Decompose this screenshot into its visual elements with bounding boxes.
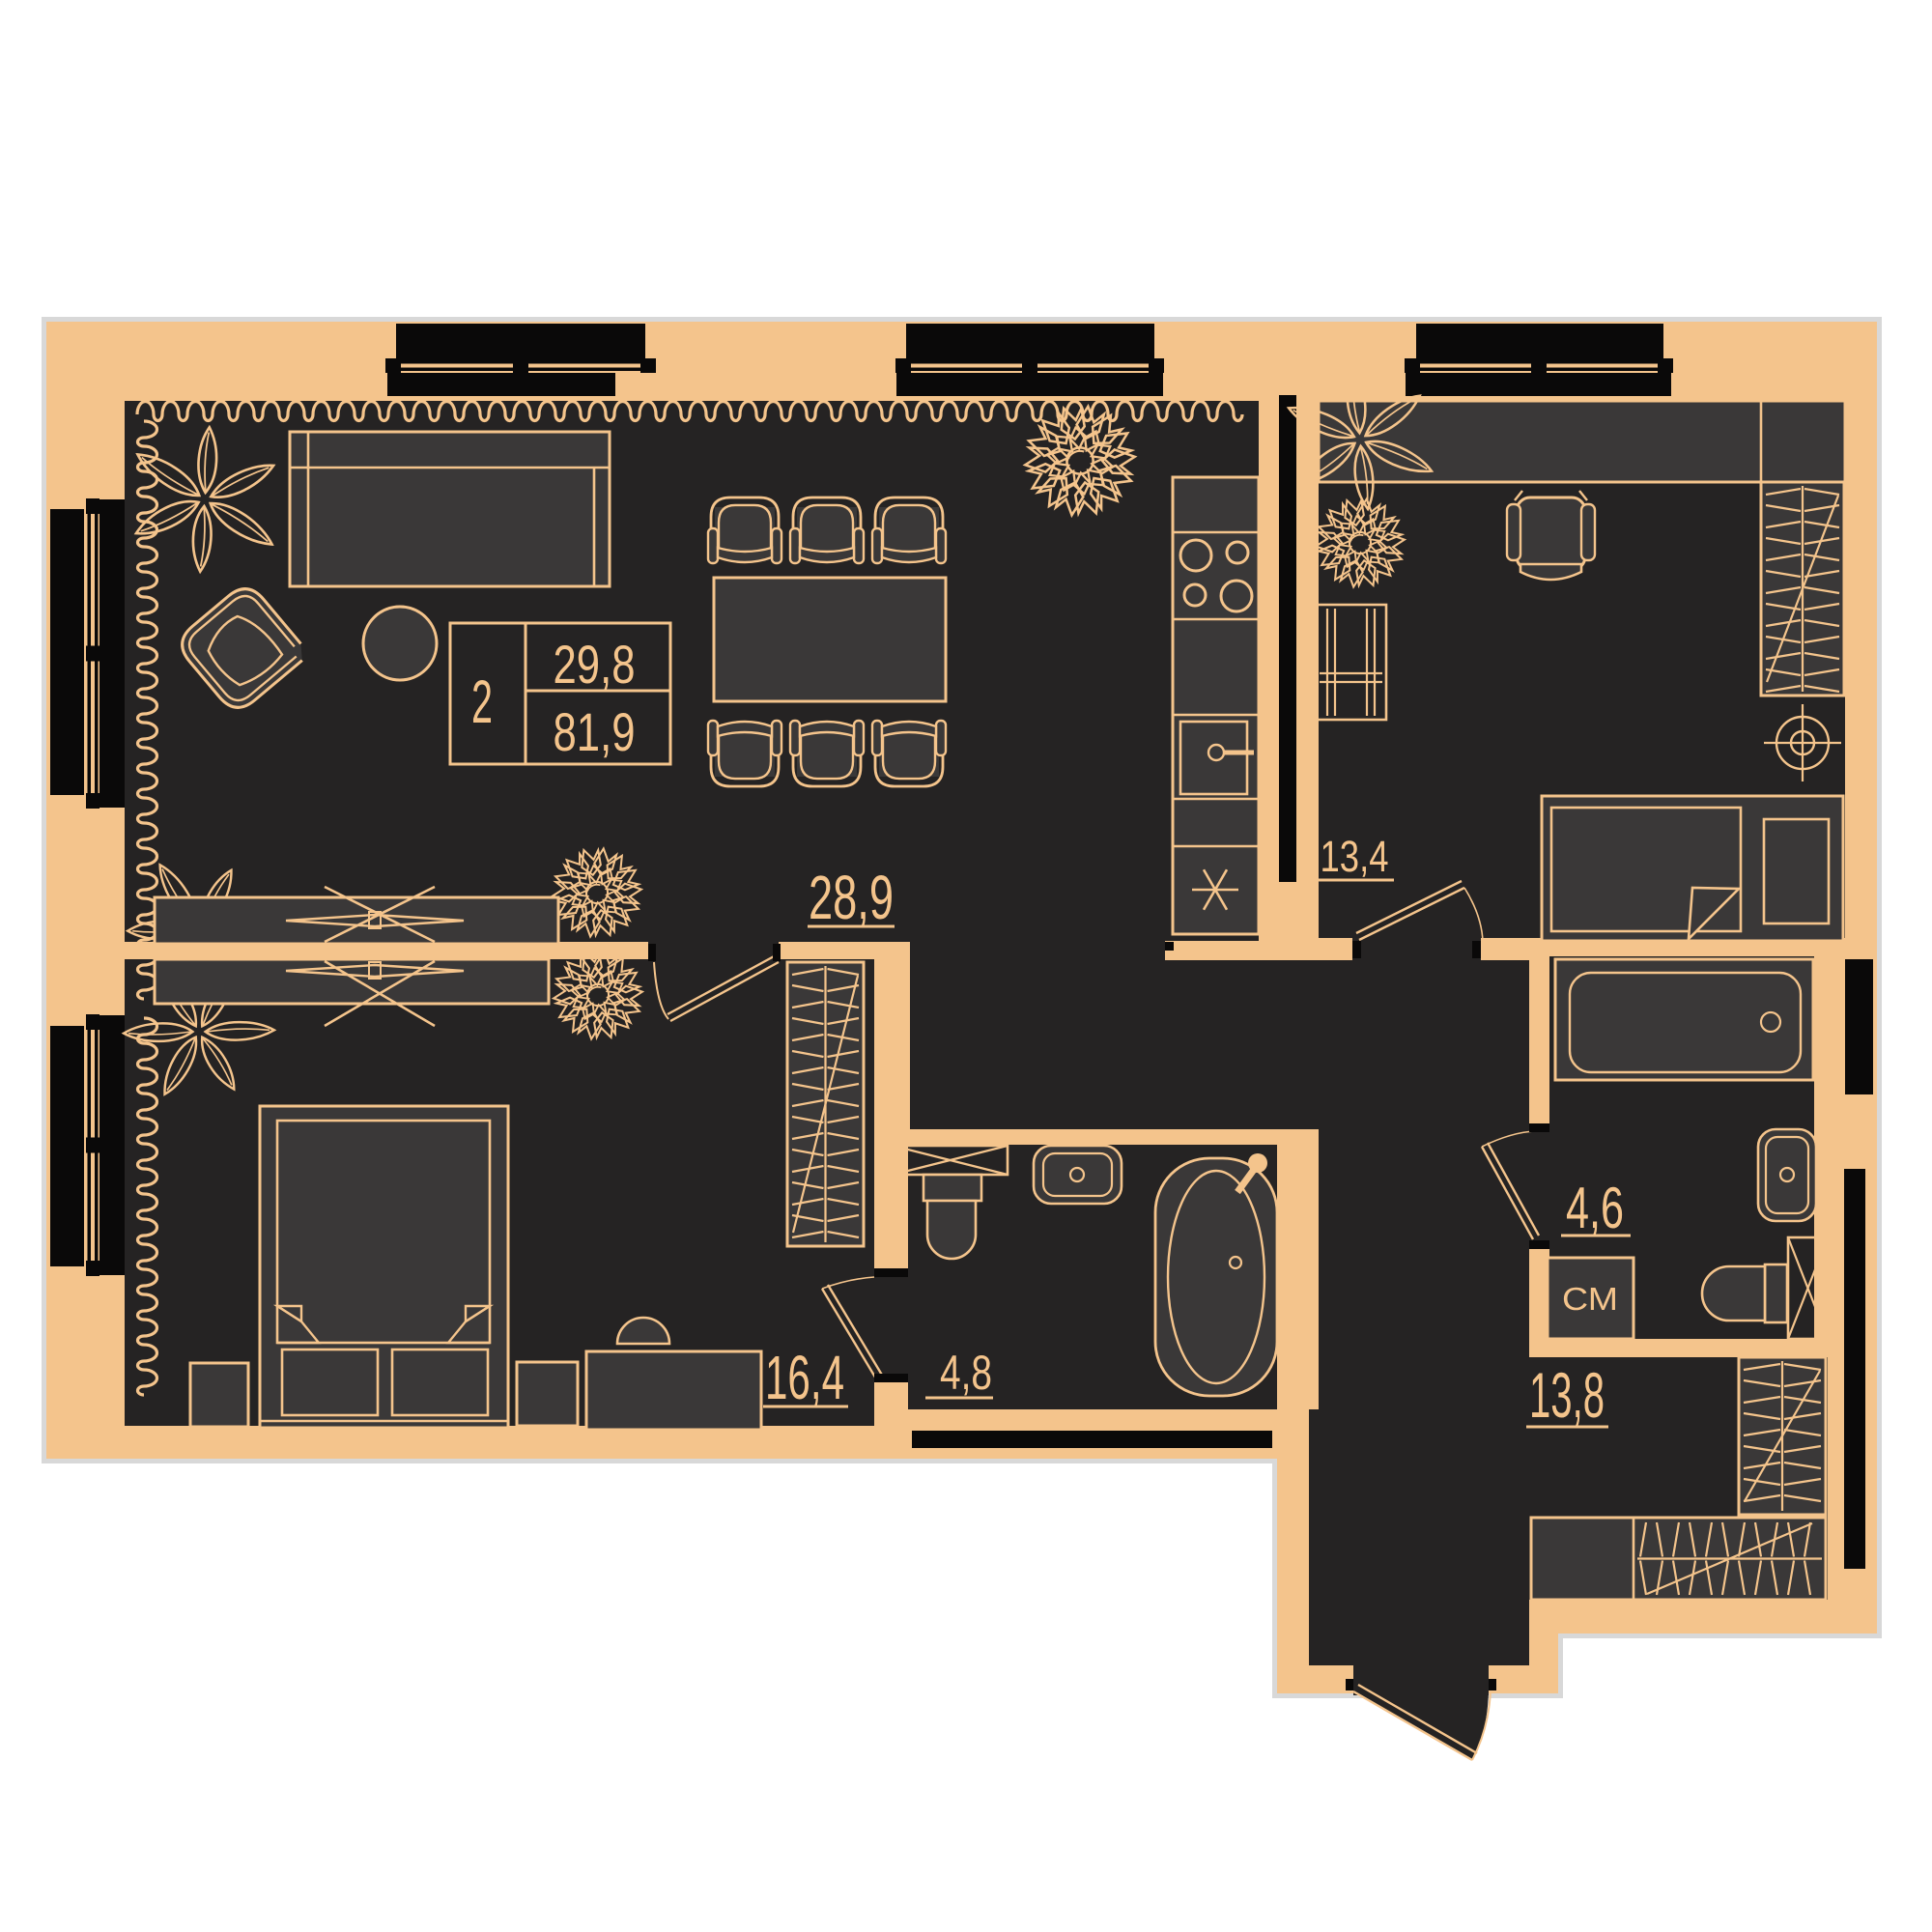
svg-text:13,8: 13,8 (1529, 1359, 1605, 1431)
svg-text:СМ: СМ (1562, 1281, 1618, 1317)
svg-text:2: 2 (471, 668, 493, 736)
svg-text:81,9: 81,9 (554, 701, 636, 762)
svg-text:13,4: 13,4 (1321, 832, 1389, 881)
svg-text:29,8: 29,8 (554, 634, 636, 695)
svg-text:28,9: 28,9 (809, 863, 894, 932)
svg-text:4,8: 4,8 (940, 1346, 992, 1400)
svg-text:4,6: 4,6 (1566, 1176, 1624, 1240)
svg-text:16,4: 16,4 (765, 1343, 844, 1412)
